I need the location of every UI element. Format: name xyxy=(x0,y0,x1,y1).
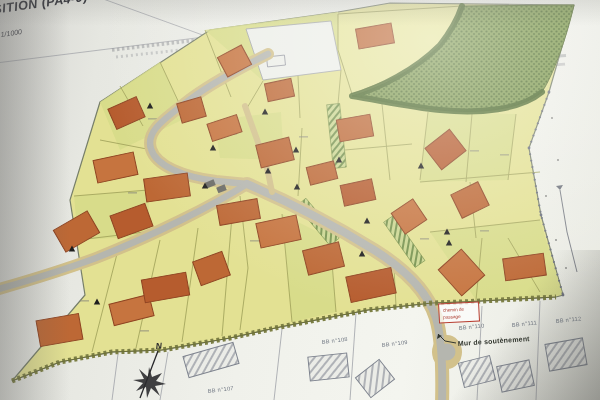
neighbor-parcel-label: BB n°107 xyxy=(207,385,234,394)
plan-title: SITION (PA4-9) xyxy=(0,0,89,17)
neighbor-parcel-label: BB n°111 xyxy=(511,319,537,328)
existing-building xyxy=(355,359,394,397)
existing-building xyxy=(545,338,587,371)
passage-note: chemin de passage xyxy=(439,302,480,323)
existing-building xyxy=(183,342,239,377)
title-block: SITION (PA4-9) 1/1000 xyxy=(0,0,89,38)
existing-building xyxy=(497,360,535,392)
passage-note-line2: passage xyxy=(443,314,461,320)
wall-label: Mur de soutènement xyxy=(458,335,531,347)
existing-building xyxy=(458,356,495,388)
neighbor-parcel-label: BB n°109 xyxy=(381,339,408,348)
neighbor-parcel-label: BB n°112 xyxy=(555,315,581,324)
plan-scale: 1/1000 xyxy=(0,28,22,38)
site-plan-svg: BB n°107BB n°108BB n°109BB n°110BB n°111… xyxy=(0,0,600,400)
neighbor-parcel-label: BB n°108 xyxy=(321,336,348,345)
plan-photo: BB n°107BB n°108BB n°109BB n°110BB n°111… xyxy=(0,0,600,400)
reserved-plot xyxy=(246,21,341,80)
green-space xyxy=(338,5,574,111)
existing-building xyxy=(308,353,349,381)
